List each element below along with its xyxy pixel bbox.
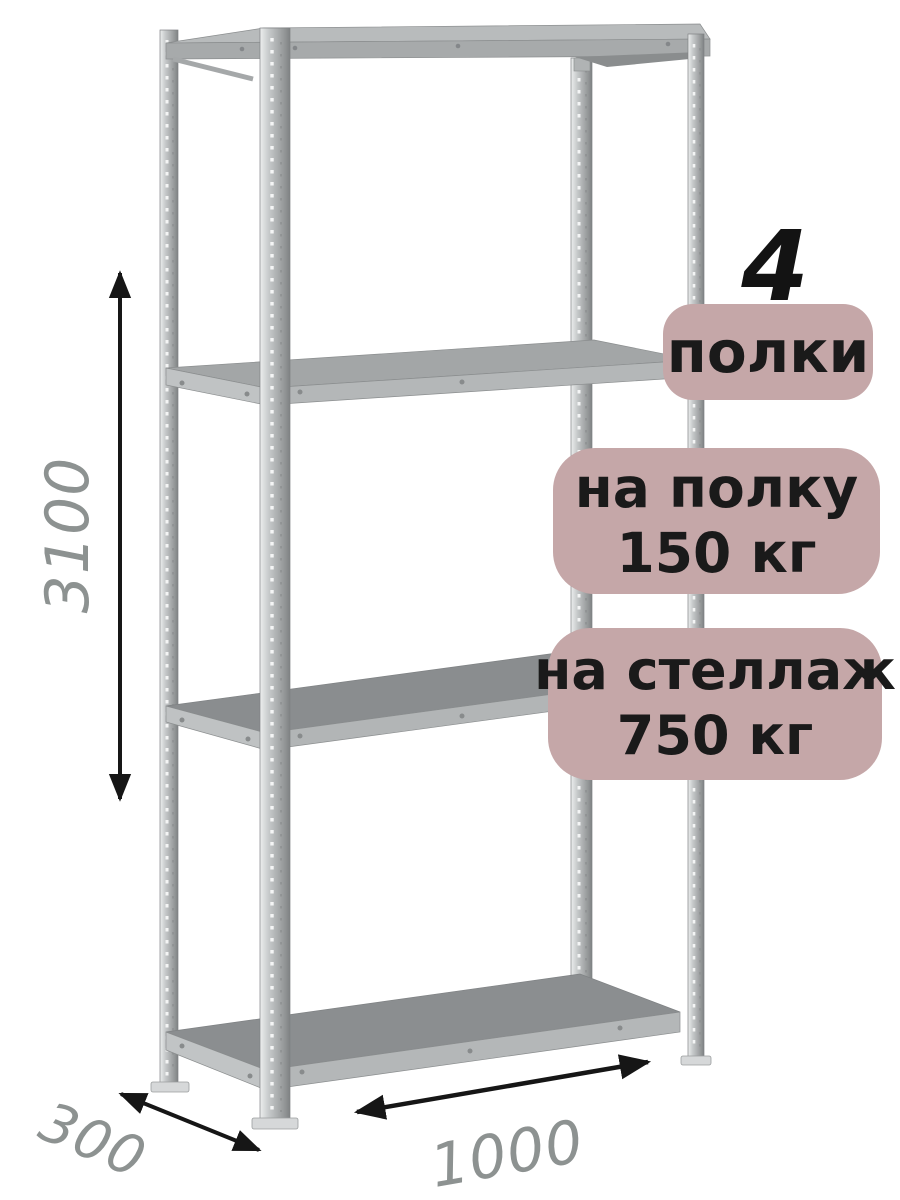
- foot-back-left: [151, 1082, 189, 1092]
- height-dimension-label: 3100: [33, 425, 103, 645]
- shelf-count-label: 4: [733, 216, 817, 316]
- post-front-left: [252, 28, 298, 1129]
- shelf-top: [166, 24, 710, 79]
- badge-shelves: полки: [663, 304, 873, 400]
- foot-front-right: [681, 1056, 711, 1065]
- product-card: 3100 300 1000 4 полки на полку 150 кг на…: [0, 0, 900, 1200]
- badge-shelf-load: на полку 150 кг: [553, 448, 880, 594]
- rack-illustration: [0, 0, 900, 1200]
- shelf-2: [166, 340, 694, 405]
- badge-rack-load-line2: 750 кг: [617, 704, 813, 769]
- badge-shelf-load-line1: на полку: [575, 456, 859, 521]
- badge-rack-load-line1: на стеллаж: [534, 639, 896, 704]
- badge-shelf-load-line2: 150 кг: [616, 521, 816, 586]
- badge-shelves-text: полки: [667, 318, 869, 386]
- foot-front-left: [252, 1118, 298, 1129]
- badge-rack-load: на стеллаж 750 кг: [548, 628, 882, 780]
- shelf-bottom: [166, 974, 680, 1090]
- post-back-left: [151, 30, 189, 1092]
